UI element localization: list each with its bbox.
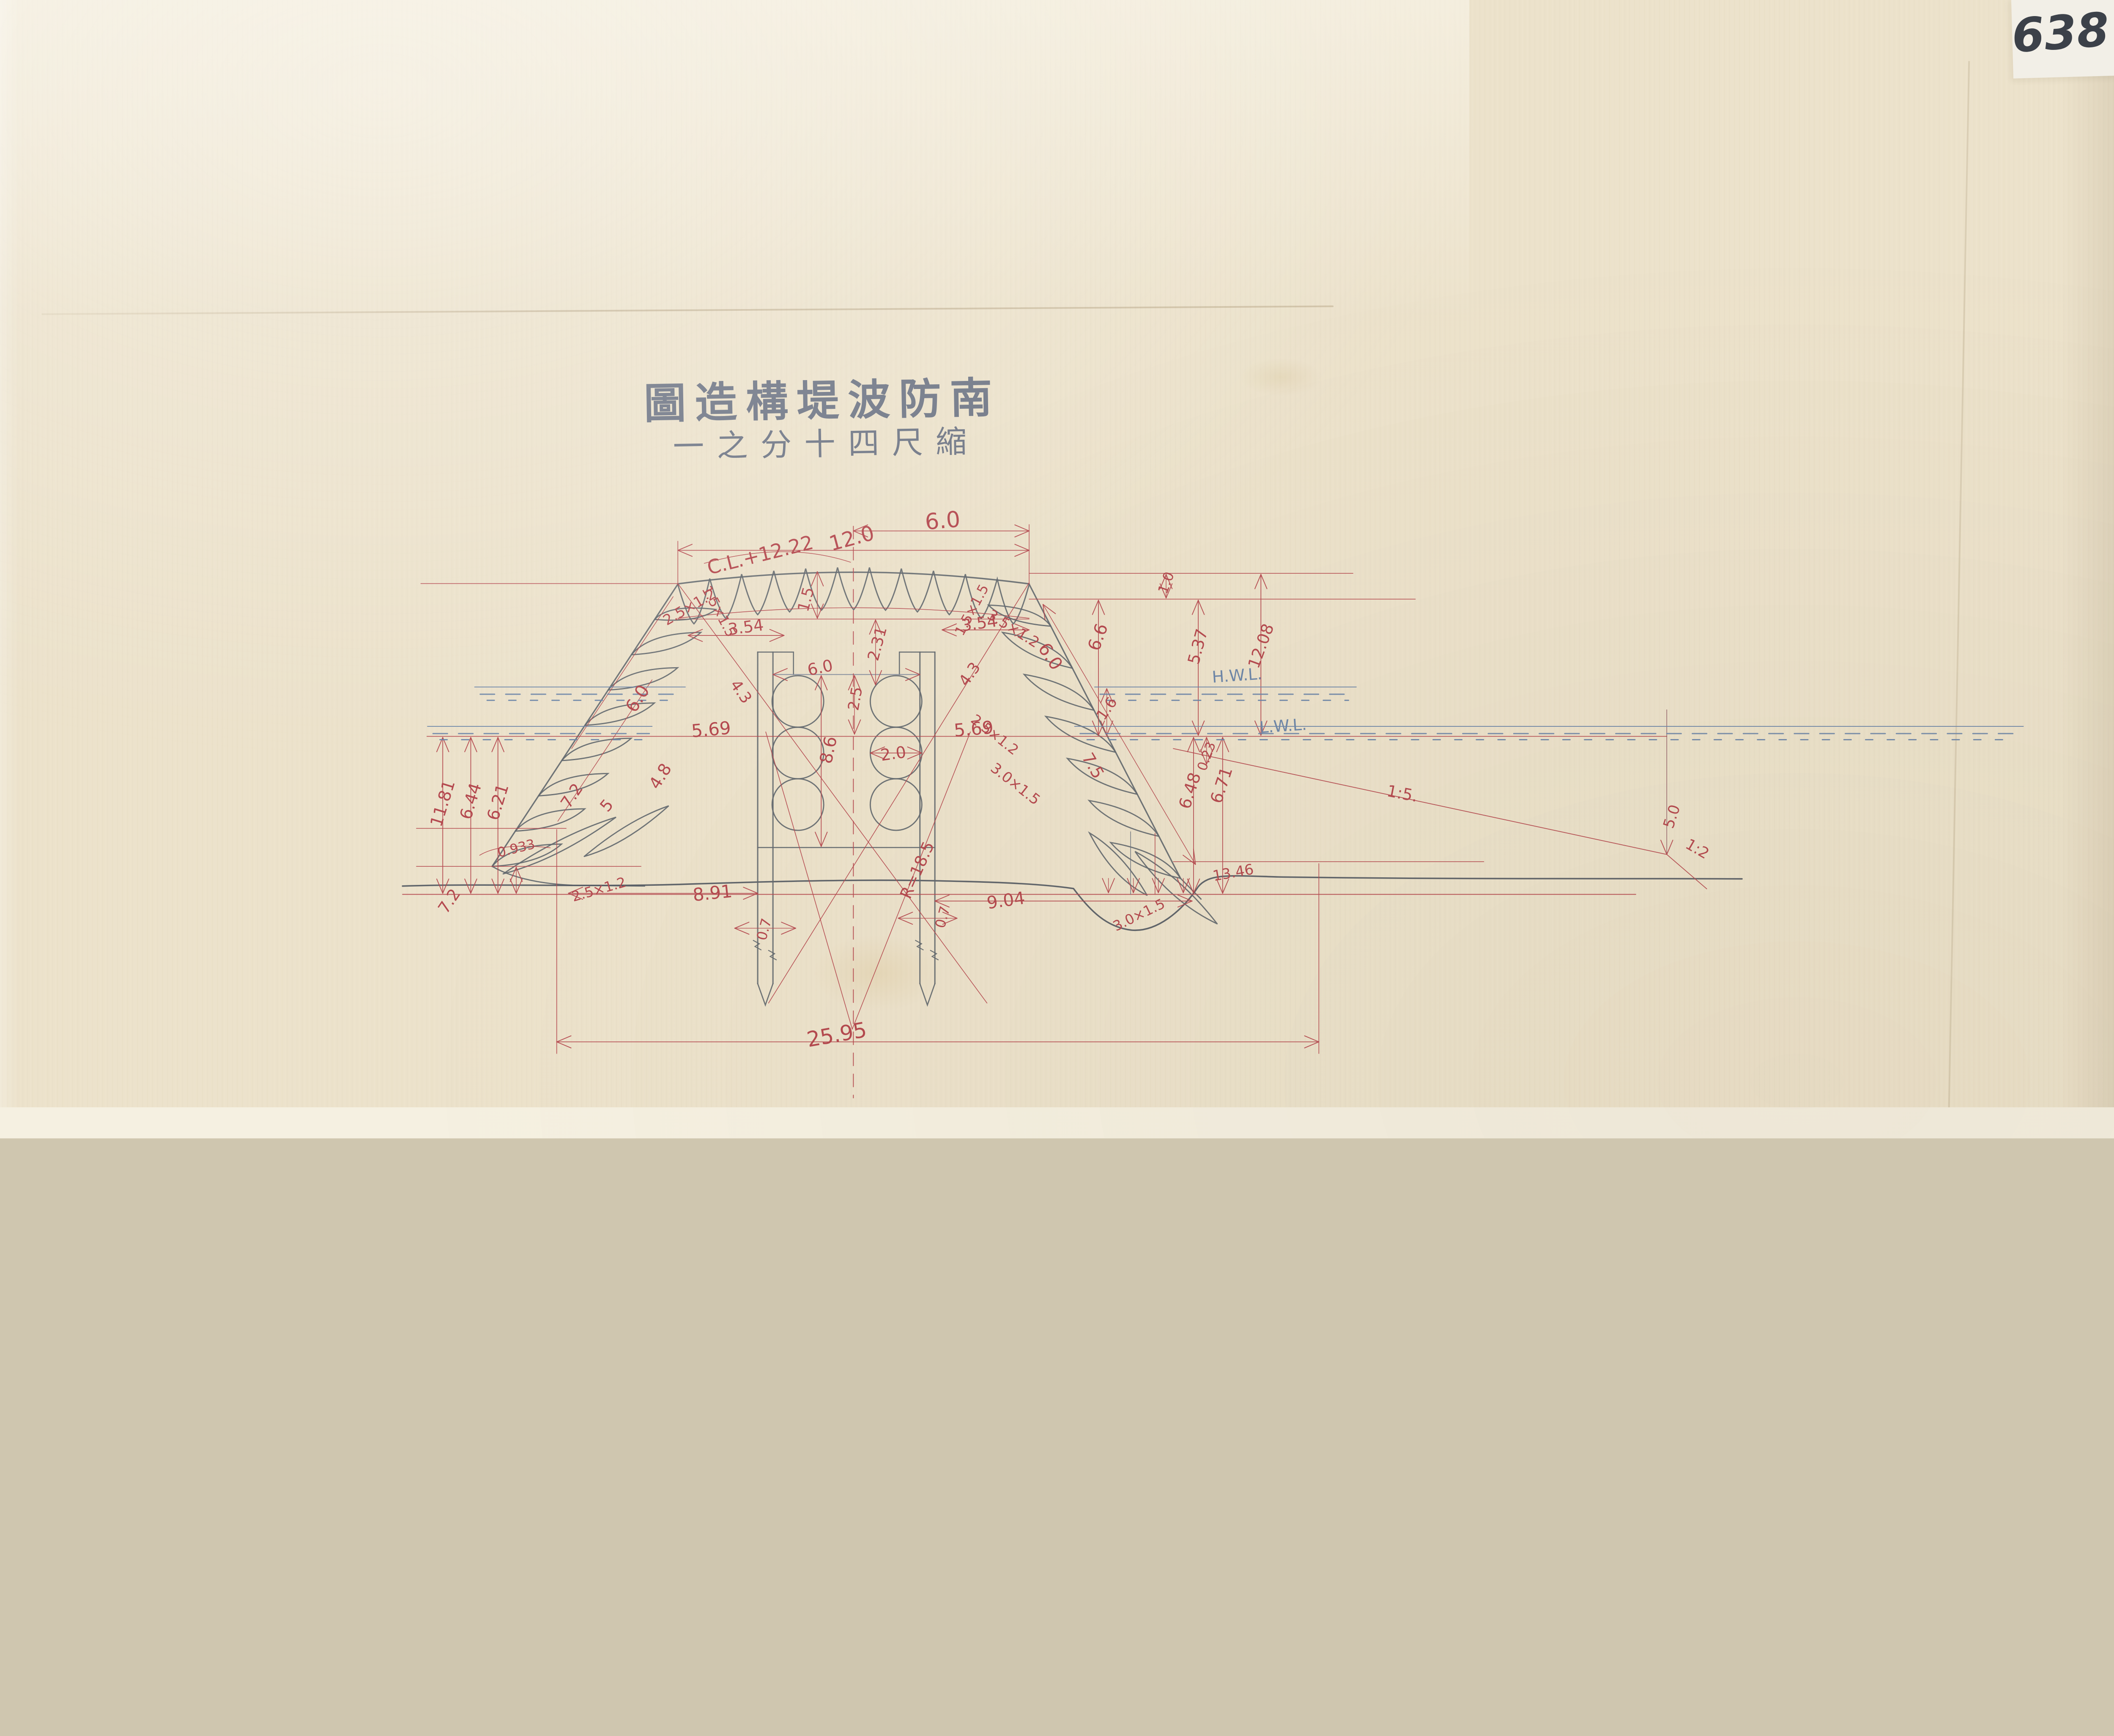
label-hwl: H.W.L.	[1211, 665, 1262, 685]
dim-core-width: 6.0	[806, 657, 834, 678]
dim-core-height: 8.6	[817, 735, 840, 765]
dim-right-base: 9.04	[986, 889, 1026, 912]
breakwater-cross-section-drawing	[0, 0, 2114, 1138]
label-lwl: L.W.L.	[1259, 716, 1307, 736]
dim-left-base: 8.91	[692, 882, 733, 904]
dim-core-upper: 2.5	[846, 686, 865, 712]
page-number: 638	[2010, 2, 2111, 63]
dim-pipe-diameter: 2.0	[879, 744, 907, 763]
drawing-scale-note: 一之分十四尺縮	[673, 416, 980, 466]
dim-left-lwl: 5.69	[691, 719, 732, 740]
dim-crest-half-width: 6.0	[924, 508, 961, 534]
scanned-breakwater-drawing-sheet: 圖造構堤波防南 一之分十四尺縮 638 6.012.0C.L.+12.221.5…	[0, 0, 2114, 1138]
